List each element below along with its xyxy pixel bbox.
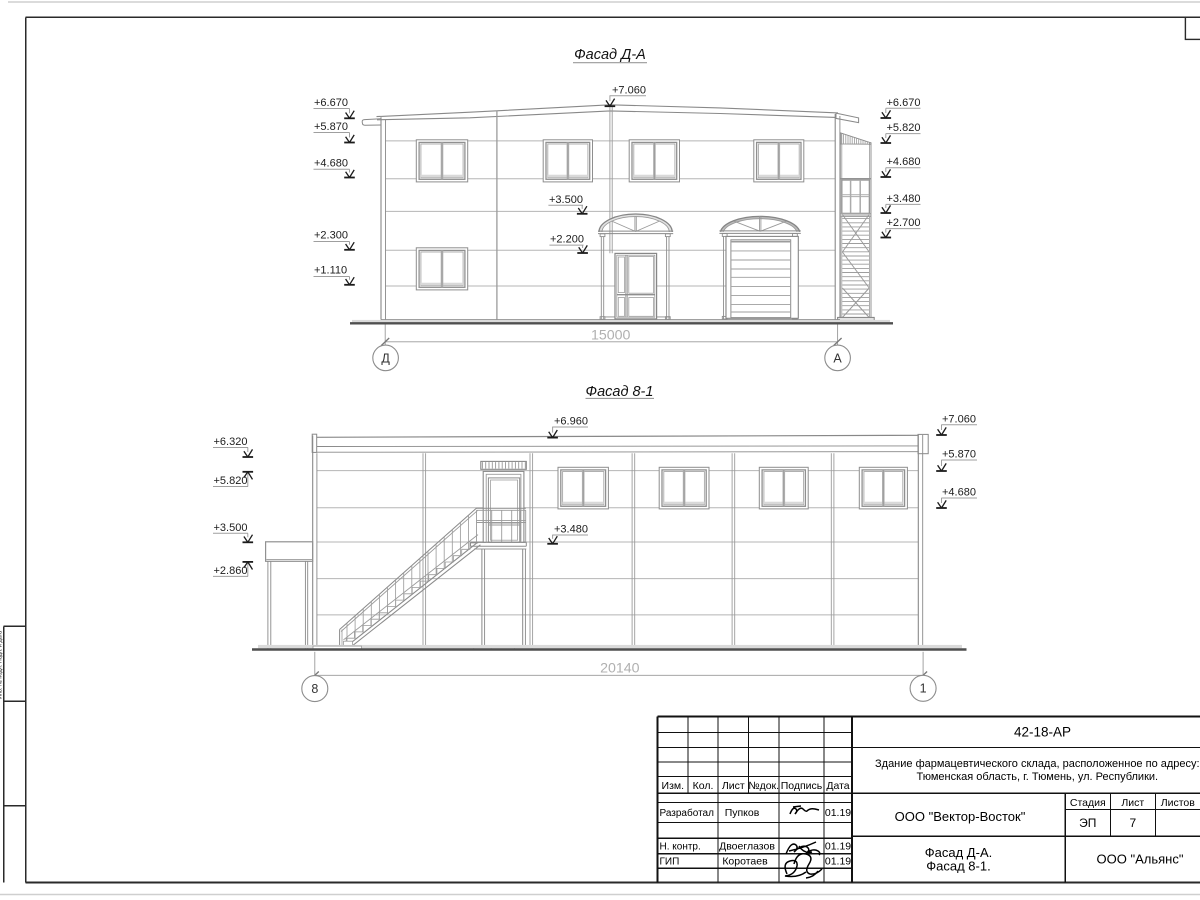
svg-text:+4.680: +4.680 xyxy=(314,158,348,170)
svg-text:+3.480: +3.480 xyxy=(554,524,588,536)
svg-text:Дата: Дата xyxy=(826,780,849,792)
svg-text:№док.: №док. xyxy=(748,780,779,792)
svg-text:Здание фармацевтического склад: Здание фармацевтического склада, располо… xyxy=(875,758,1200,770)
svg-text:Листов: Листов xyxy=(1161,797,1196,809)
svg-text:7: 7 xyxy=(1129,816,1136,830)
svg-text:+6.960: +6.960 xyxy=(554,416,588,428)
svg-text:01.19: 01.19 xyxy=(825,855,851,867)
svg-text:А: А xyxy=(833,351,842,365)
svg-text:Стадия: Стадия xyxy=(1070,797,1106,809)
svg-text:15000: 15000 xyxy=(591,328,631,344)
svg-text:Фасад 8-1.: Фасад 8-1. xyxy=(926,859,990,874)
svg-text:+5.870: +5.870 xyxy=(942,449,976,461)
svg-text:+3.500: +3.500 xyxy=(214,522,248,534)
svg-text:+3.480: +3.480 xyxy=(887,193,921,205)
svg-text:+6.670: +6.670 xyxy=(314,97,348,109)
svg-text:1: 1 xyxy=(920,682,927,696)
svg-text:Фасад Д-А: Фасад Д-А xyxy=(574,47,646,63)
svg-text:+5.820: +5.820 xyxy=(887,122,921,134)
svg-text:Пупков: Пупков xyxy=(725,807,760,819)
svg-text:Тюменская область, г. Тюмень,: Тюменская область, г. Тюмень, ул. Респуб… xyxy=(916,771,1158,783)
svg-text:ЭП: ЭП xyxy=(1079,816,1096,830)
svg-text:Инв. № подл. Подп. и дата: Инв. № подл. Подп. и дата xyxy=(0,630,4,699)
svg-text:Лист: Лист xyxy=(1121,797,1144,809)
svg-text:ООО "Вектор-Восток": ООО "Вектор-Восток" xyxy=(895,809,1026,824)
svg-text:01.19: 01.19 xyxy=(825,841,851,853)
svg-text:+4.680: +4.680 xyxy=(942,487,976,499)
svg-text:Лист: Лист xyxy=(722,780,745,792)
svg-text:+6.670: +6.670 xyxy=(887,97,921,109)
svg-text:+7.060: +7.060 xyxy=(612,84,646,96)
svg-text:ГИП: ГИП xyxy=(660,856,680,867)
svg-text:+2.860: +2.860 xyxy=(214,565,248,577)
svg-text:8: 8 xyxy=(311,682,318,696)
svg-text:+6.320: +6.320 xyxy=(214,436,248,448)
svg-text:+3.500: +3.500 xyxy=(549,194,583,206)
svg-text:Разработал: Разработал xyxy=(660,807,715,819)
svg-text:Д: Д xyxy=(381,351,390,365)
svg-text:Двоеглазов: Двоеглазов xyxy=(719,841,775,853)
svg-text:+5.820: +5.820 xyxy=(214,475,248,487)
svg-text:Н. контр.: Н. контр. xyxy=(660,842,701,853)
svg-text:Изм.: Изм. xyxy=(662,780,685,792)
svg-text:Коротаев: Коротаев xyxy=(722,855,768,867)
svg-text:+2.200: +2.200 xyxy=(550,234,584,246)
svg-text:+5.870: +5.870 xyxy=(314,121,348,133)
svg-text:01.19: 01.19 xyxy=(825,807,851,819)
svg-text:Фасад 8-1: Фасад 8-1 xyxy=(586,384,654,400)
svg-text:ООО "Альянс": ООО "Альянс" xyxy=(1097,852,1184,867)
svg-text:+7.060: +7.060 xyxy=(942,413,976,425)
svg-text:Подпись: Подпись xyxy=(781,780,823,792)
svg-text:42-18-АР: 42-18-АР xyxy=(1014,725,1071,740)
svg-text:+2.700: +2.700 xyxy=(887,217,921,229)
svg-text:+2.300: +2.300 xyxy=(314,230,348,242)
svg-text:+1.110: +1.110 xyxy=(314,265,347,277)
svg-text:+4.680: +4.680 xyxy=(887,156,921,168)
svg-text:Кол.: Кол. xyxy=(693,780,714,792)
svg-text:20140: 20140 xyxy=(600,660,640,676)
